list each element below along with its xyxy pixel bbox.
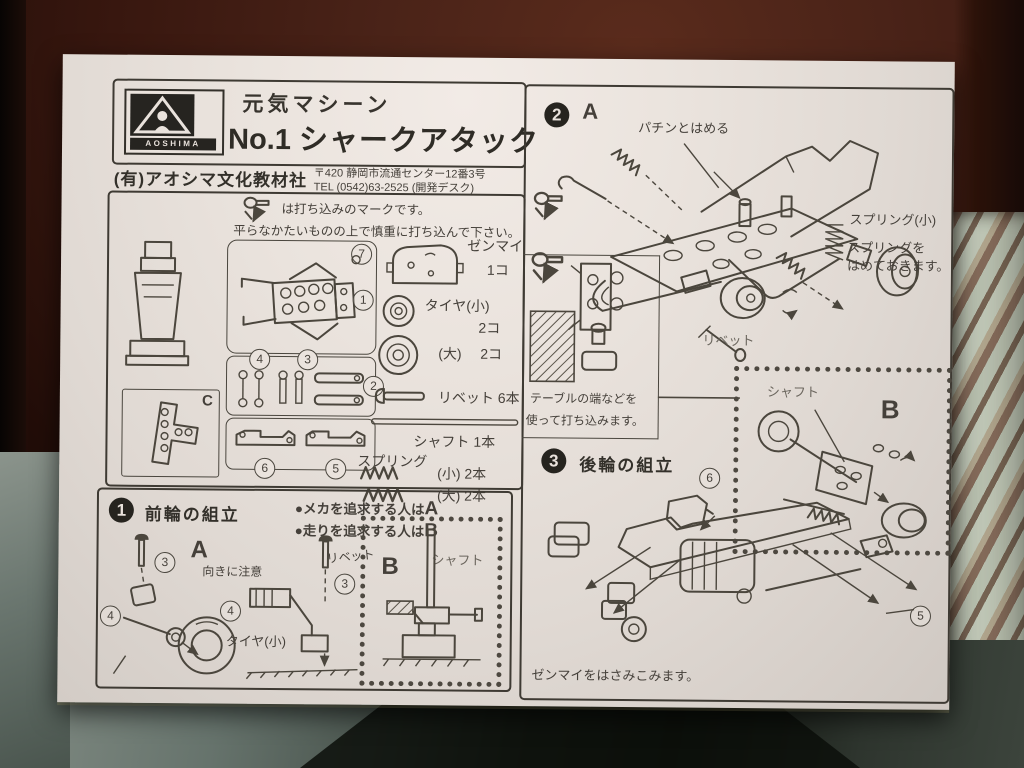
bracket-parts-drawing [230, 425, 370, 452]
company-name: (有)アオシマ文化教材社 [114, 165, 308, 192]
section1-title: 前輪の組立 [145, 500, 240, 526]
section2-number: 2 [544, 102, 569, 127]
part-name: タイヤ(小) [425, 295, 490, 316]
photo-background: AOSHIMA 元気マシーン No.1 シャークアタック (有)アオシマ文化教材… [0, 0, 1024, 768]
part-name: シャフト 1本 [413, 431, 495, 452]
parts-tray-3: 6 5 [225, 418, 375, 471]
instruction-sheet: AOSHIMA 元気マシーン No.1 シャークアタック (有)アオシマ文化教材… [57, 54, 955, 710]
table-note-2: 使って打ち込みます。 [526, 411, 644, 429]
b-press-box: B シャフト [359, 516, 502, 687]
spring-small-label: スプリング(小) [849, 209, 936, 229]
spring-small-qty: (小) 2本 [437, 463, 486, 483]
table-edge-box: テーブルの端などを 使って打ち込みます。 [522, 254, 661, 439]
spring-note-2: はめておきます。 [847, 255, 949, 275]
part-qty: 1コ [487, 260, 509, 280]
tire-large-icon [376, 333, 420, 377]
front-arm-press-drawing [227, 531, 378, 682]
part-qty: 2コ [480, 344, 502, 364]
divider-line [658, 393, 740, 402]
parts-list: ゼンマイ 1コ タイヤ(小) 2コ (大) 2コ リベット 6本 [110, 193, 524, 197]
spring-note-1: スプリングを [847, 237, 925, 257]
spring-drawing [821, 223, 847, 263]
logo-triangle-icon [130, 94, 194, 137]
parts-tray-1: 7 1 [226, 240, 377, 355]
parts-box: は打ち込みのマークです。 平らなかたいものの上で慎重に打ち込んで下さい。 C [105, 191, 526, 491]
small-parts-drawing [231, 367, 371, 414]
tire-drawing [173, 612, 240, 679]
mainspring-note: ゼンマイをはさみこみます。 [531, 664, 699, 684]
part-name: リベット 6本 [438, 387, 520, 408]
chassis-part-drawing [231, 255, 370, 348]
section3-title: 後輪の組立 [579, 451, 674, 477]
rivet-icon [374, 387, 432, 406]
brand-name: AOSHIMA [130, 138, 216, 151]
rivet-label: リベット [702, 330, 754, 349]
stamp-note-line1: は打ち込みのマークです。 [281, 198, 430, 218]
shaft-press-drawing [374, 527, 487, 670]
c-sprue-box: C [121, 389, 220, 478]
section23-box: 2 A パチンとはめる [519, 84, 954, 704]
kit-title-name: シャークアタック [299, 124, 539, 158]
callout-6: 6 [254, 458, 275, 479]
header-box: AOSHIMA 元気マシーン No.1 シャークアタック [112, 79, 527, 169]
shaft-icon [370, 417, 520, 428]
kit-title-no: No.1 [228, 124, 291, 157]
callout-5: 5 [325, 458, 346, 479]
section1-box: 1 前輪の組立 ●メカを追求する人はA ●走りを追求する人はB A 3 向きに注… [95, 487, 513, 692]
spring-small-icon [361, 467, 397, 479]
parts-tray-2: 4 3 2 [226, 356, 377, 417]
aoshima-logo: AOSHIMA [124, 89, 225, 156]
part-qty: 2コ [478, 318, 500, 338]
table-edge-drawing [528, 259, 653, 386]
section2-variant-a: A [582, 99, 598, 125]
table-note-1: テーブルの端などを [530, 389, 637, 407]
kit-title: No.1 シャークアタック [228, 116, 539, 161]
rear-assembly-drawing [530, 482, 942, 664]
wheel-rivet-drawing [670, 263, 821, 374]
section3-number: 3 [541, 448, 566, 473]
tire-small-icon [380, 293, 416, 329]
section1-number: 1 [109, 498, 134, 523]
callout-1: 1 [353, 290, 374, 311]
series-title: 元気マシーン [242, 88, 391, 119]
runner-body-part [114, 239, 203, 378]
c-part-drawing [130, 398, 211, 471]
mainspring-part-icon [385, 239, 465, 288]
part-name: ゼンマイ [467, 236, 523, 256]
part-name: (大) [438, 343, 462, 363]
